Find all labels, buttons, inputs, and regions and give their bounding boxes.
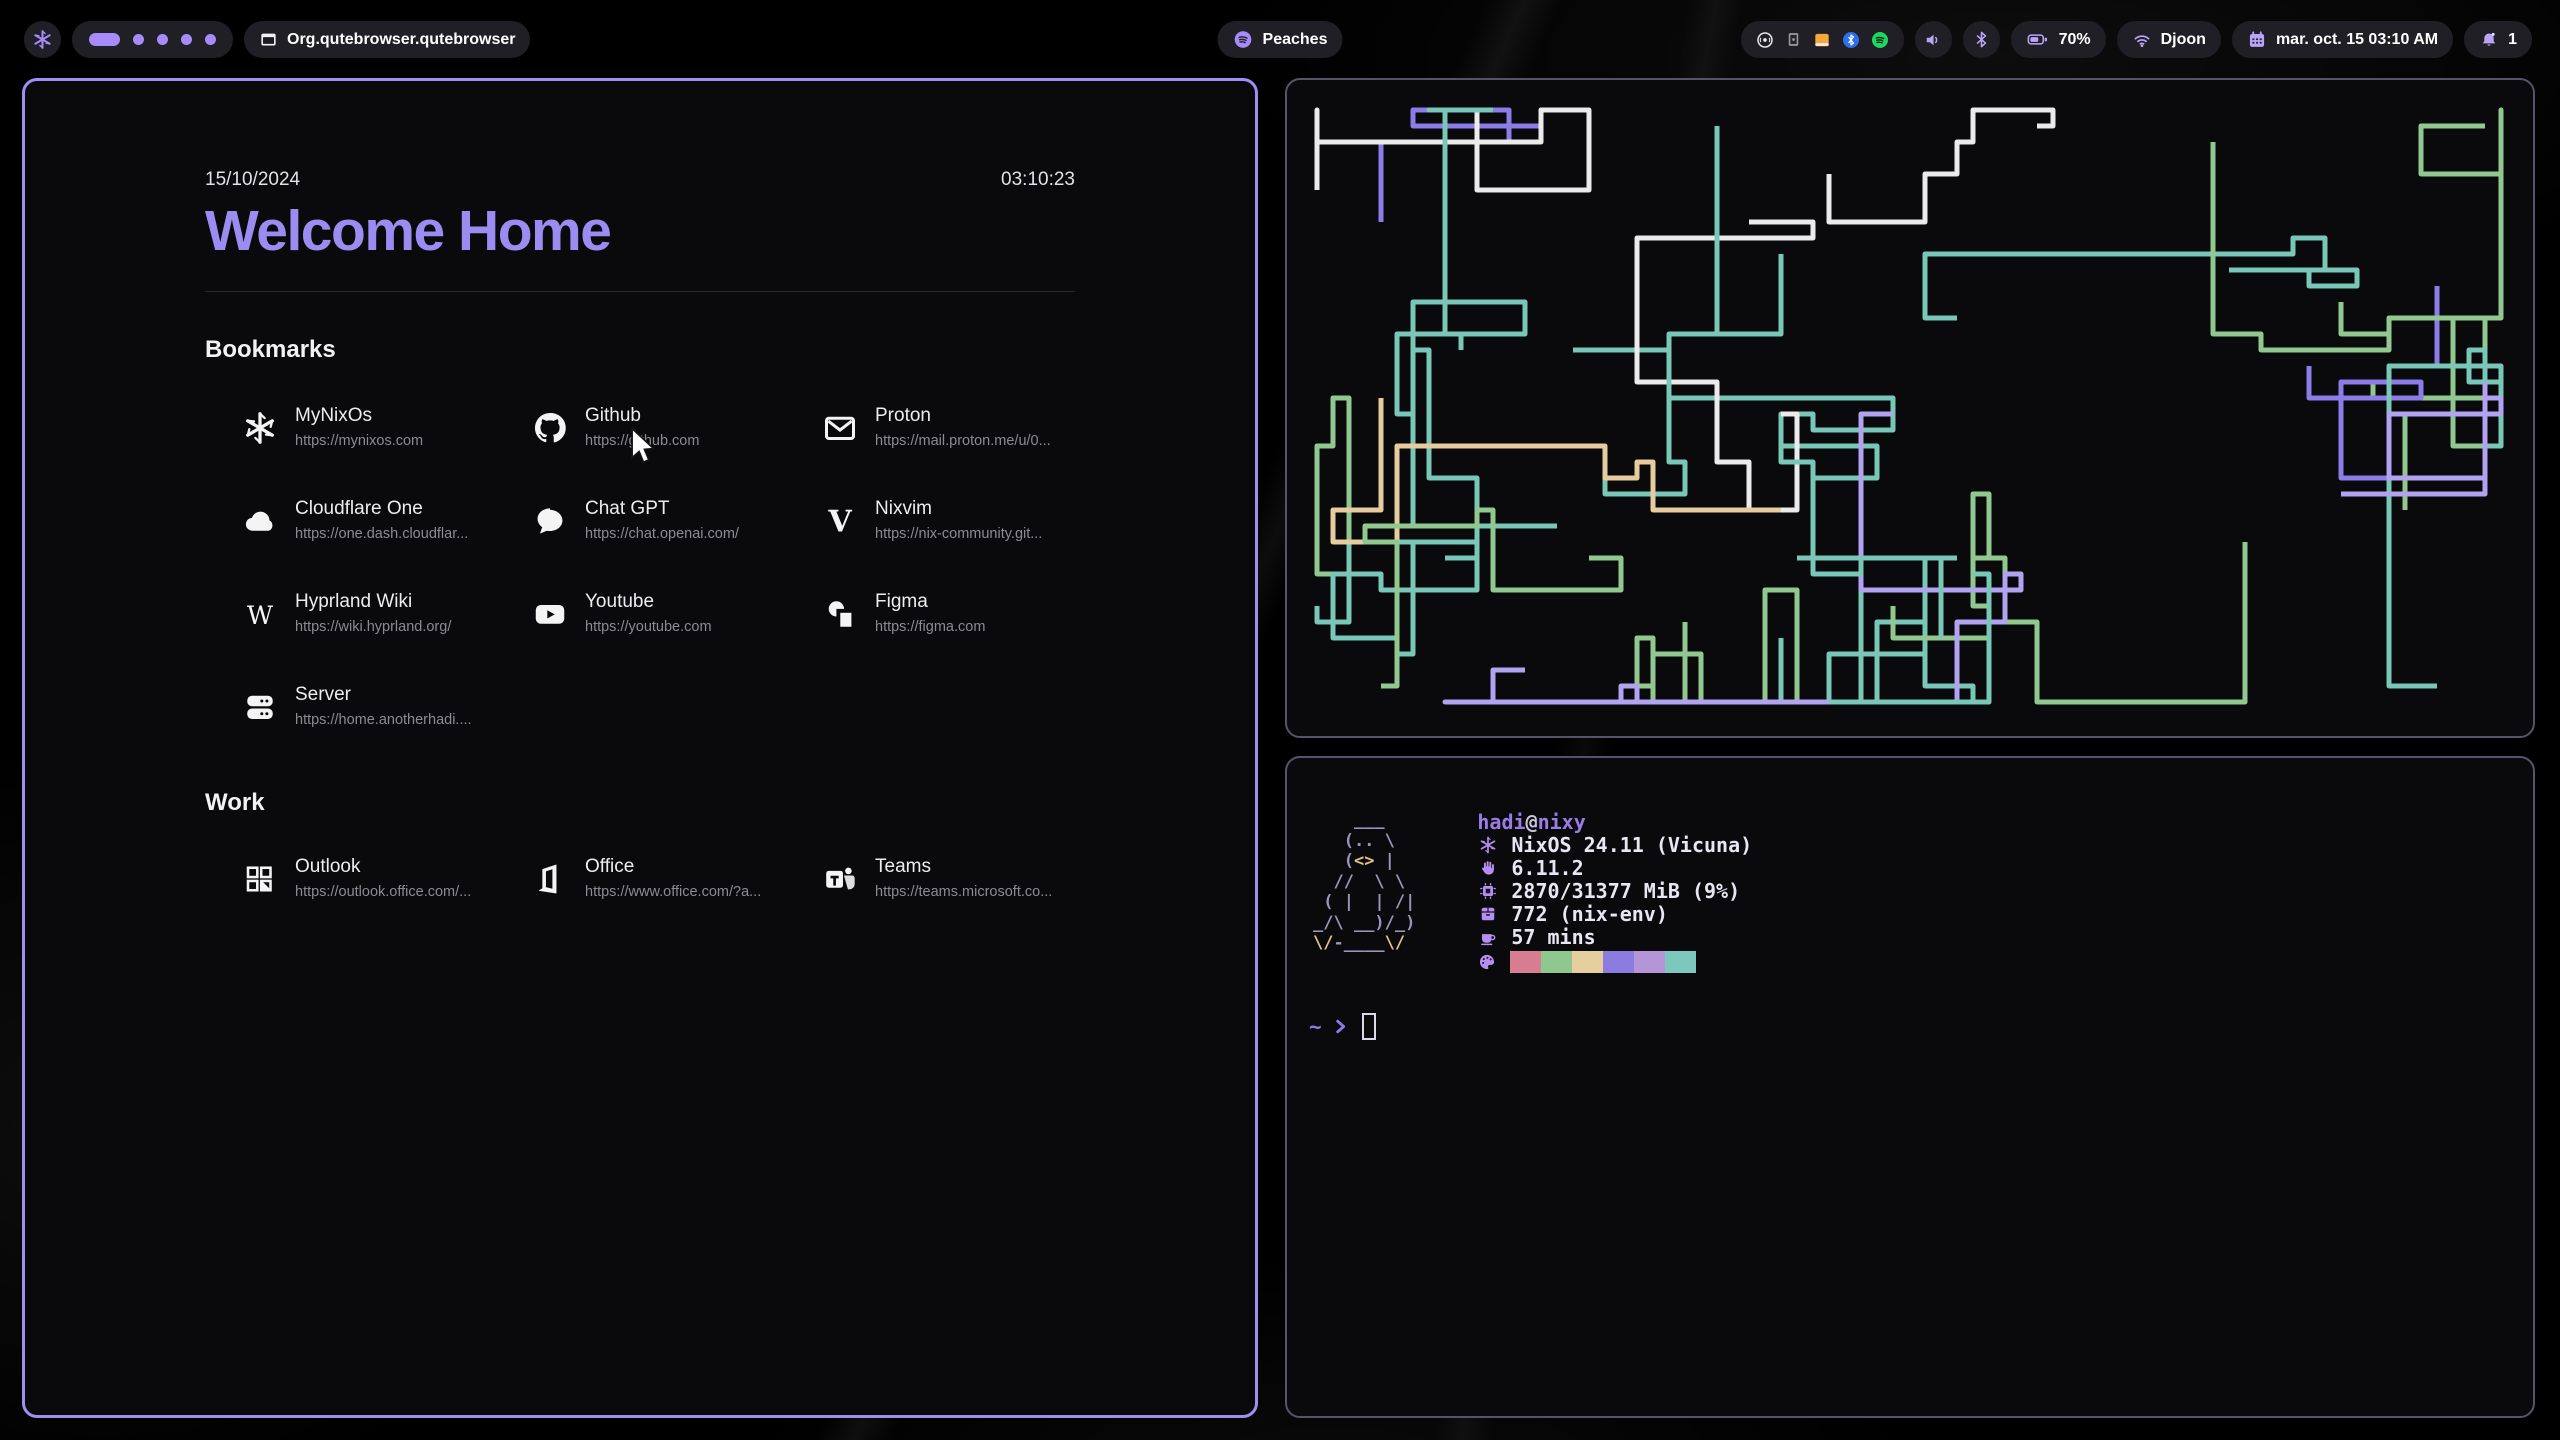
divider [205, 291, 1075, 292]
workspace-dot[interactable] [133, 34, 144, 45]
server-icon [241, 688, 278, 725]
nixvim-icon: V [821, 502, 858, 539]
workspace-dot[interactable] [205, 34, 216, 45]
volume-button[interactable] [1915, 21, 1952, 58]
pipe-segment [1637, 590, 1797, 702]
fetch-info-text: 772 (nix-env) [1511, 902, 1668, 926]
proton-icon [821, 409, 858, 446]
bookmark-name: Outlook [295, 856, 471, 879]
ascii-logo: ___ (.. \ (<> | // \ \ ( | | /| _/\ __)/… [1313, 810, 1415, 973]
fetch-info-line: 6.11.2 [1477, 856, 1752, 879]
office-icon [531, 860, 568, 897]
pipe-segment [2389, 110, 2501, 334]
battery-pill[interactable]: 70% [2011, 21, 2106, 58]
bookmark-url: https://figma.com [875, 619, 985, 636]
bookmark-item[interactable]: Teamshttps://teams.microsoft.co... [785, 855, 1075, 903]
bookmark-name: Cloudflare One [295, 498, 468, 521]
active-window-pill[interactable]: Org.qutebrowser.qutebrowser [244, 21, 530, 58]
bookmark-name: Teams [875, 856, 1052, 879]
fetch-user: hadi [1477, 810, 1525, 834]
color-swatches [1510, 951, 1696, 973]
palette-swatch [1634, 951, 1665, 973]
bookmark-name: Figma [875, 591, 985, 614]
pipe-segment [1893, 494, 2245, 702]
prompt-path: ~ [1309, 1015, 1322, 1039]
fetch-info-text: 2870/31377 MiB (9%) [1511, 879, 1740, 903]
bookmark-name: Server [295, 684, 472, 707]
bookmark-url: https://www.office.com/?a... [585, 884, 761, 901]
fetch-info-lines: NixOS 24.11 (Vicuna)6.11.22870/31377 MiB… [1477, 833, 1752, 948]
bookmark-name: Chat GPT [585, 498, 739, 521]
spotify-tray-icon[interactable] [1870, 30, 1890, 50]
calendar-icon [2247, 30, 2267, 50]
pipes-art [1301, 94, 2517, 718]
network-ssid: Djoon [2161, 31, 2206, 49]
pipes-terminal-window[interactable] [1285, 78, 2535, 738]
terminal-cursor [1362, 1013, 1376, 1040]
bookmark-name: Office [585, 856, 761, 879]
bookmark-item[interactable]: Cloudflare Onehttps://one.dash.cloudflar… [205, 497, 495, 545]
mynixos-icon [241, 409, 278, 446]
bookmark-url: https://teams.microsoft.co... [875, 884, 1052, 901]
prompt-chevron-icon [1332, 1016, 1349, 1037]
kernel-icon [1477, 858, 1498, 878]
snowflake-icon [1477, 835, 1498, 855]
media-pill[interactable]: Peaches [1218, 21, 1343, 58]
fastfetch-output: ___ (.. \ (<> | // \ \ ( | | /| _/\ __)/… [1287, 758, 2533, 973]
svg-text:V: V [827, 504, 852, 539]
startpage: 15/10/2024 03:10:23 Welcome Home Bookmar… [205, 81, 1075, 903]
figma-icon [821, 595, 858, 632]
bluetooth-button[interactable] [1963, 21, 2000, 58]
media-track-label: Peaches [1263, 31, 1328, 49]
workspace-indicator[interactable] [72, 21, 233, 58]
fetch-info-text: NixOS 24.11 (Vicuna) [1511, 833, 1752, 857]
bluetooth-tray-icon[interactable] [1841, 30, 1861, 50]
bookmark-item[interactable]: Figmahttps://figma.com [785, 590, 1075, 638]
teams-icon [821, 860, 858, 897]
fetch-host: nixy [1538, 810, 1586, 834]
bookmark-item[interactable]: WHyprland Wikihttps://wiki.hyprland.org/ [205, 590, 495, 638]
speaker-icon [1923, 30, 1943, 50]
bookmark-item[interactable]: Youtubehttps://youtube.com [495, 590, 785, 638]
active-window-title: Org.qutebrowser.qutebrowser [287, 31, 515, 49]
pipe-segment [1717, 126, 1781, 334]
launcher-button[interactable] [24, 21, 61, 58]
pipe-segment [1397, 110, 1525, 414]
bookmark-url: https://wiki.hyprland.org/ [295, 619, 451, 636]
packages-icon [1477, 904, 1498, 924]
bookmark-item[interactable]: Outlookhttps://outlook.office.com/... [205, 855, 495, 903]
mouse-cursor [630, 427, 657, 470]
fetch-info-line: 772 (nix-env) [1477, 902, 1752, 925]
wiki-icon: W [241, 595, 278, 632]
pipe-segment [1333, 398, 1781, 542]
pipe-segment [1925, 238, 2357, 318]
workspace-dot[interactable] [181, 34, 192, 45]
bookmark-item[interactable]: VNixvimhttps://nix-community.git... [785, 497, 1075, 545]
section-heading: Bookmarks [205, 336, 1075, 366]
pipe-segment [1605, 334, 1749, 494]
files-tray-icon[interactable] [1812, 30, 1832, 50]
pipe-segment [1365, 510, 1621, 686]
workspace-active[interactable] [89, 33, 120, 46]
bookmark-item[interactable]: Serverhttps://home.anotherhadi.... [205, 683, 495, 731]
notification-count: 1 [2508, 31, 2517, 49]
cloudflare-icon [241, 502, 278, 539]
youtube-icon [531, 595, 568, 632]
palette-swatch [1510, 951, 1541, 973]
startpage-time: 03:10:23 [1001, 169, 1075, 191]
palette-swatch [1541, 951, 1572, 973]
github-icon [531, 409, 568, 446]
user-host-line: hadi@nixy [1477, 810, 1752, 833]
uptime-icon [1477, 927, 1498, 947]
page-title: Welcome Home [205, 199, 1075, 265]
shell-prompt[interactable]: ~ [1309, 1013, 2533, 1040]
workspace-dot[interactable] [157, 34, 168, 45]
workspace-dots [133, 34, 216, 45]
bluetooth-icon [1972, 30, 1991, 49]
palette-swatch [1603, 951, 1634, 973]
outlook-icon [241, 860, 278, 897]
palette-swatch [1572, 951, 1603, 973]
bookmark-name: Github [585, 405, 699, 428]
palette-line [1477, 951, 1752, 973]
fetch-info-text: 57 mins [1511, 925, 1595, 949]
clock-label: mar. oct. 15 03:10 AM [2276, 31, 2438, 49]
fetch-info-line: 2870/31377 MiB (9%) [1477, 879, 1752, 902]
bookmark-name: Proton [875, 405, 1051, 428]
notifications-pill[interactable]: 1 [2464, 21, 2532, 58]
bookmark-name: Hyprland Wiki [295, 591, 451, 614]
palette-icon [1477, 952, 1497, 972]
bookmark-url: https://home.anotherhadi.... [295, 712, 472, 729]
section-heading: Work [205, 789, 1075, 819]
bookmark-name: MyNixOs [295, 405, 423, 428]
bookmark-url: https://youtube.com [585, 619, 712, 636]
pipe-segment [2213, 142, 2389, 350]
clock-pill[interactable]: mar. oct. 15 03:10 AM [2232, 21, 2453, 58]
fetch-terminal-window[interactable]: ___ (.. \ (<> | // \ \ ( | | /| _/\ __)/… [1285, 756, 2535, 1418]
wifi-icon [2132, 30, 2152, 50]
bookmark-item[interactable]: Protonhttps://mail.proton.me/u/0... [785, 404, 1075, 452]
record-tray-icon[interactable] [1755, 30, 1775, 50]
bookmark-item[interactable]: Chat GPThttps://chat.openai.com/ [495, 497, 785, 545]
chatgpt-icon [531, 502, 568, 539]
fetch-info-line: 57 mins [1477, 925, 1752, 948]
pipe-segment [1317, 398, 1349, 574]
bookmark-item[interactable]: Officehttps://www.office.com/?a... [495, 855, 785, 903]
palette-swatch [1665, 951, 1696, 973]
pipe-segment [2309, 286, 2437, 478]
battery-icon [2026, 29, 2050, 50]
device-tray-icon[interactable] [1784, 30, 1803, 49]
pipe-segment [1637, 222, 1813, 510]
pipe-segment [1829, 110, 2053, 222]
system-tray[interactable] [1741, 21, 1904, 58]
bookmark-url: https://mynixos.com [295, 433, 423, 450]
bookmark-url: https://mail.proton.me/u/0... [875, 433, 1051, 450]
bookmark-url: https://nix-community.git... [875, 526, 1042, 543]
bookmark-grid: Outlookhttps://outlook.office.com/...Off… [205, 855, 1075, 903]
bookmark-url: https://outlook.office.com/... [295, 884, 471, 901]
window-icon [259, 30, 278, 49]
pipe-segment [1573, 350, 1893, 478]
bookmark-name: Youtube [585, 591, 712, 614]
bookmark-url: https://chat.openai.com/ [585, 526, 739, 543]
nixos-logo-icon [32, 29, 53, 50]
bookmark-name: Nixvim [875, 498, 1042, 521]
fetch-info: hadi@nixy NixOS 24.11 (Vicuna)6.11.22870… [1477, 810, 1752, 973]
qutebrowser-window[interactable]: 15/10/2024 03:10:23 Welcome Home Bookmar… [22, 78, 1258, 1418]
pipe-segment [1797, 558, 1973, 702]
startpage-sections: BookmarksMyNixOshttps://mynixos.comGithu… [205, 336, 1075, 903]
bookmark-url: https://one.dash.cloudflar... [295, 526, 468, 543]
pipe-segment [1317, 110, 1589, 190]
bell-icon [2479, 30, 2499, 50]
network-pill[interactable]: Djoon [2117, 21, 2221, 58]
spotify-icon [1233, 29, 1254, 50]
bookmark-item[interactable]: MyNixOshttps://mynixos.com [205, 404, 495, 452]
memory-icon [1477, 881, 1498, 901]
startpage-date: 15/10/2024 [205, 169, 300, 191]
svg-text:W: W [246, 600, 273, 630]
battery-percent: 70% [2059, 31, 2091, 49]
top-bar: Org.qutebrowser.qutebrowser Peaches 7 [0, 0, 2560, 76]
fetch-at: @ [1526, 810, 1538, 834]
fetch-info-line: NixOS 24.11 (Vicuna) [1477, 833, 1752, 856]
fetch-info-text: 6.11.2 [1511, 856, 1583, 880]
